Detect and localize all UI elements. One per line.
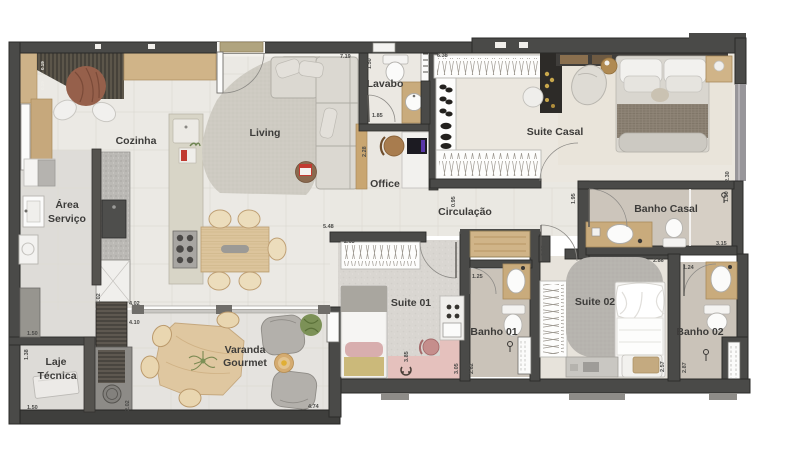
svg-text:1.95: 1.95 <box>571 193 577 204</box>
svg-text:Circulação: Circulação <box>438 206 492 218</box>
svg-text:0.19: 0.19 <box>40 81 45 90</box>
svg-text:7.19: 7.19 <box>340 54 351 60</box>
svg-text:0.95: 0.95 <box>451 196 457 207</box>
svg-text:1.02: 1.02 <box>96 293 102 304</box>
svg-text:1.50: 1.50 <box>27 331 38 337</box>
svg-text:Laje: Laje <box>45 356 66 368</box>
svg-text:1.24: 1.24 <box>683 265 695 271</box>
svg-text:5.48: 5.48 <box>323 224 334 230</box>
svg-text:3.15: 3.15 <box>716 241 727 247</box>
svg-text:1.50: 1.50 <box>367 58 373 69</box>
svg-text:3.05: 3.05 <box>454 363 460 374</box>
svg-text:Banho 02: Banho 02 <box>676 326 723 338</box>
svg-text:2.86: 2.86 <box>653 258 664 264</box>
svg-text:Técnica: Técnica <box>37 370 76 382</box>
svg-text:1.30: 1.30 <box>724 191 730 202</box>
svg-text:Área: Área <box>55 198 79 211</box>
svg-text:0.19: 0.19 <box>40 61 45 70</box>
svg-text:2.30: 2.30 <box>725 171 731 182</box>
svg-text:4.10: 4.10 <box>129 320 140 326</box>
svg-text:1.38: 1.38 <box>24 349 30 360</box>
svg-text:1.25: 1.25 <box>472 274 483 280</box>
svg-text:4.02: 4.02 <box>129 301 140 307</box>
svg-text:1.50: 1.50 <box>27 405 38 411</box>
svg-text:3.05: 3.05 <box>541 245 547 256</box>
svg-text:2.63: 2.63 <box>344 239 355 245</box>
svg-text:Suite 02: Suite 02 <box>575 296 615 308</box>
svg-text:2.87: 2.87 <box>682 362 688 373</box>
svg-text:Gourmet: Gourmet <box>223 357 267 369</box>
svg-text:Varanda: Varanda <box>225 344 266 356</box>
svg-text:4.74: 4.74 <box>308 404 320 410</box>
svg-text:1.85: 1.85 <box>372 113 383 119</box>
svg-text:Suite Casal: Suite Casal <box>527 126 584 138</box>
svg-text:3.85: 3.85 <box>404 351 410 362</box>
svg-text:Suite 01: Suite 01 <box>391 297 431 309</box>
svg-text:Cozinha: Cozinha <box>116 135 157 147</box>
svg-text:2.62: 2.62 <box>469 363 475 374</box>
svg-text:Banho Casal: Banho Casal <box>634 203 698 215</box>
svg-text:Serviço: Serviço <box>48 213 86 225</box>
svg-text:Lavabo: Lavabo <box>367 78 404 90</box>
svg-text:Office: Office <box>370 178 400 190</box>
svg-text:2.02: 2.02 <box>125 400 131 411</box>
svg-text:Living: Living <box>250 127 281 139</box>
svg-text:2.28: 2.28 <box>362 146 368 157</box>
svg-text:6.38: 6.38 <box>437 53 448 59</box>
svg-text:2.57: 2.57 <box>660 361 666 372</box>
svg-text:Banho 01: Banho 01 <box>470 326 517 338</box>
